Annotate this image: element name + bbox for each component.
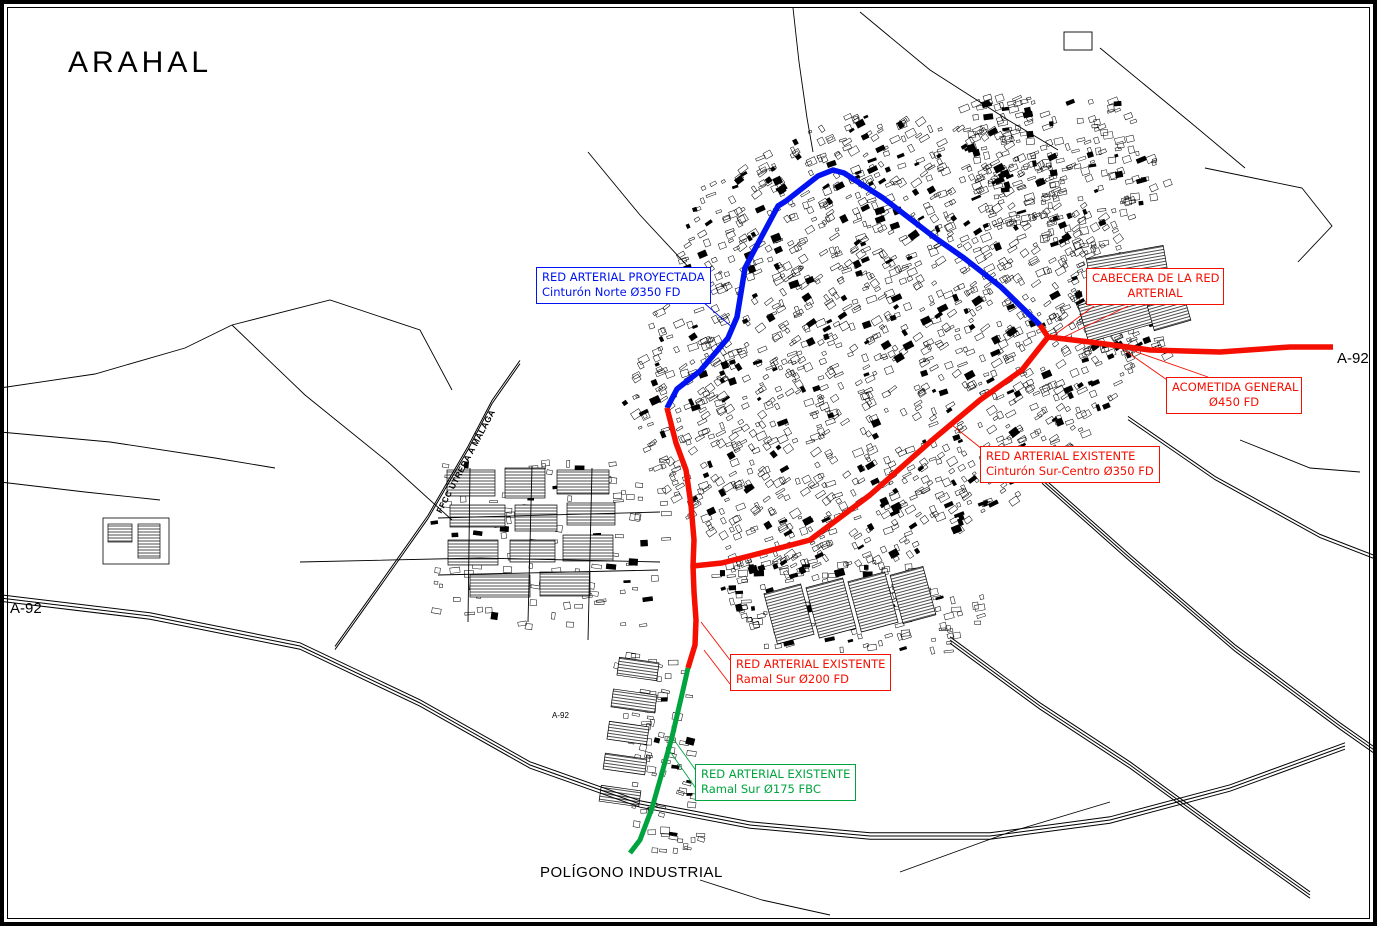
label-ramal-sur-200: RED ARTERIAL EXISTENTE Ramal Sur Ø200 FD [730,654,891,691]
label-line2: Ramal Sur Ø200 FD [736,672,885,687]
label-acometida-general: ACOMETIDA GENERAL Ø450 FD [1166,377,1302,414]
label-line1: RED ARTERIAL EXISTENTE [986,449,1154,464]
label-red-arterial-proyectada: RED ARTERIAL PROYECTADA Cinturón Norte Ø… [536,267,711,304]
label-line1: RED ARTERIAL EXISTENTE [701,767,850,782]
label-line2: ARTERIAL [1092,286,1218,301]
label-line2: Ramal Sur Ø175 FBC [701,782,850,797]
label-a92-east: A-92 [1337,350,1369,367]
label-ramal-sur-175: RED ARTERIAL EXISTENTE Ramal Sur Ø175 FB… [695,764,856,801]
label-line1: RED ARTERIAL PROYECTADA [542,270,705,285]
label-a92-small: A-92 [552,711,569,720]
label-line1: CABECERA DE LA RED [1092,271,1218,286]
label-cinturon-sur-centro: RED ARTERIAL EXISTENTE Cinturón Sur-Cent… [980,446,1160,483]
label-a92-west: A-92 [10,600,42,617]
page-title: ARAHAL [68,46,212,80]
label-line2: Cinturón Norte Ø350 FD [542,285,705,300]
label-line2: Ø450 FD [1172,395,1296,410]
label-cabecera-red-arterial: CABECERA DE LA RED ARTERIAL [1086,268,1224,305]
label-line1: RED ARTERIAL EXISTENTE [736,657,885,672]
label-line1: ACOMETIDA GENERAL [1172,380,1296,395]
map-canvas [0,0,1377,926]
plan-arahal: ARAHAL RED ARTERIAL PROYECTADA Cinturón … [0,0,1377,926]
label-line2: Cinturón Sur-Centro Ø350 FD [986,464,1154,479]
label-poligono-industrial: POLÍGONO INDUSTRIAL [540,864,723,881]
